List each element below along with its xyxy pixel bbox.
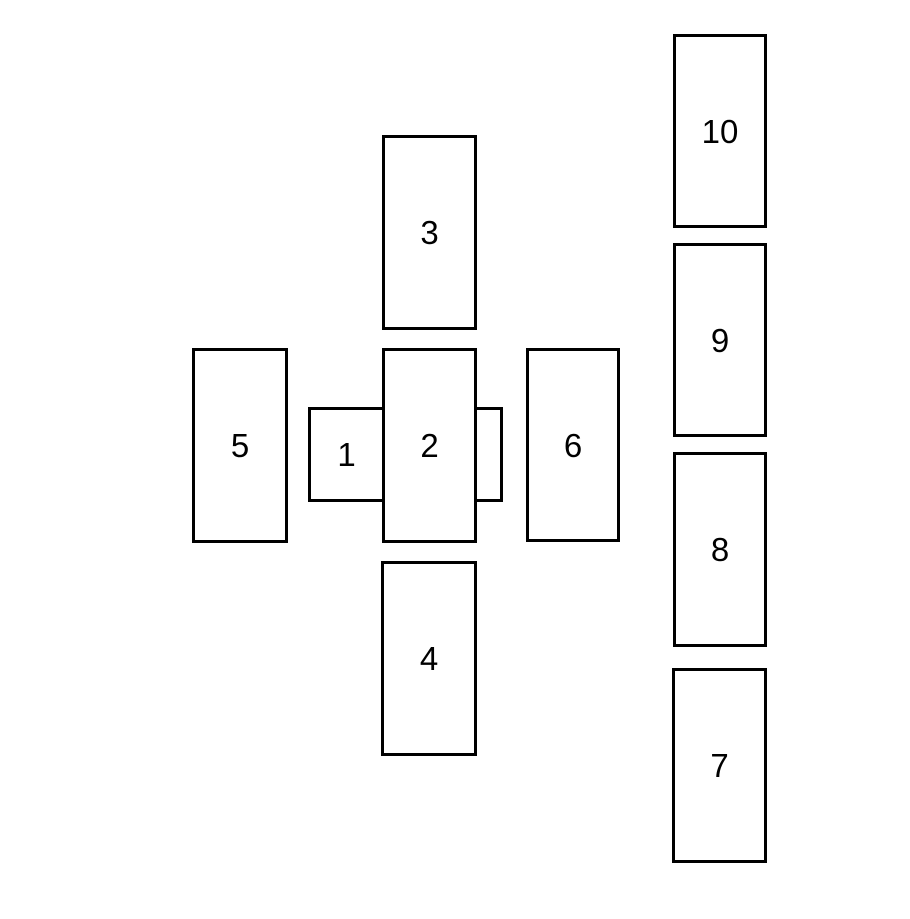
card-label: 6 [564,429,582,462]
card-label: 2 [420,429,438,462]
card-label: 3 [420,216,438,249]
card-9: 9 [673,243,767,437]
celtic-cross-spread-diagram: 1 2 3 4 5 6 10 9 8 7 [0,0,910,919]
card-label: 5 [231,429,249,462]
card-label: 8 [711,533,729,566]
card-10: 10 [673,34,767,228]
card-label: 4 [420,642,438,675]
card-7: 7 [672,668,767,863]
card-6: 6 [526,348,620,542]
card-5: 5 [192,348,288,543]
card-label: 9 [711,324,729,357]
card-8: 8 [673,452,767,647]
card-label: 7 [710,749,728,782]
card-label: 1 [337,438,355,471]
card-4: 4 [381,561,477,756]
card-2: 2 [382,348,477,543]
card-label: 10 [702,115,739,148]
card-3: 3 [382,135,477,330]
card-1-label-area: 1 [311,410,382,499]
